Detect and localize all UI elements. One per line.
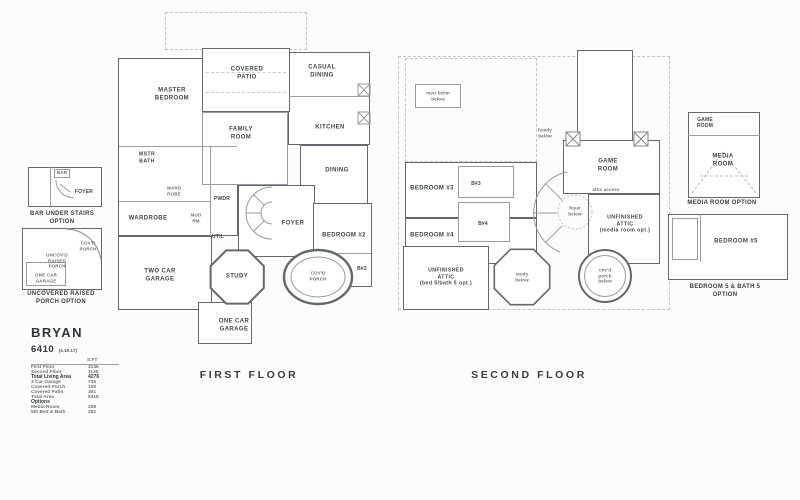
porch-option-covd-label: COV'D PORCH (79, 240, 96, 251)
room-label-two-car-garage: TWO CAR GARAGE (144, 269, 175, 284)
bed5-option-caption: BEDROOM 5 & BATH 5 OPTION (690, 284, 761, 300)
room-label-kitchen: KITCHEN (315, 124, 344, 132)
room-label-family-room: FAMILY ROOM (229, 127, 253, 142)
room-label-wardrobe: WARDROBE (129, 215, 168, 223)
porch-option-one-car-label: ONE CAR GARAGE (35, 272, 57, 283)
room-label-unfinished-attic-media: UNFINISHED ATTIC (media room opt.) (600, 214, 651, 234)
plan-name: BRYAN (31, 326, 119, 339)
room-label-foyer: FOYER (282, 220, 305, 228)
sf-stair-arc (534, 172, 567, 252)
room-label-family-below: family below (538, 127, 552, 138)
first-floor-title: FIRST FLOOR (200, 369, 299, 381)
bed5-option-bedroom-label: BEDROOM #5 (714, 238, 758, 246)
table-row: 5th Bed & Bath282 (31, 410, 119, 415)
room-label-bath-3: B#3 (471, 181, 481, 187)
porch-option-caption: UNCOVERED RAISED PORCH OPTION (27, 291, 94, 307)
room-label-covd-porch: COV'D PORCH (309, 270, 326, 281)
room-label-study: STUDY (226, 273, 248, 281)
bar-option-foyer-label: FOYER (75, 189, 93, 195)
room-label-bedroom-2: BEDROOM #2 (322, 232, 366, 240)
room-label-unfinished-attic-bed5: UNFINISHED ATTIC (bed 5/bath 5 opt.) (420, 267, 472, 287)
room-label-bedroom-3: BEDROOM #3 (410, 185, 454, 193)
room-label-bedroom-4: BEDROOM #4 (410, 232, 454, 240)
room-label-foyer-below: foyer below (568, 205, 582, 216)
ff-stair-inner (261, 202, 272, 224)
second-floor-title: SECOND FLOOR (471, 369, 587, 381)
room-label-mstr-bath: MSTR BATH (139, 152, 155, 165)
room-label-pwdr: PWDR (214, 196, 230, 202)
bar-stair-arc (56, 180, 74, 198)
room-label-study-below: study below (515, 271, 529, 282)
room-label-covd-porch-below: cov'd porch below (598, 267, 612, 284)
room-label-master-bedroom: MASTER BEDROOM (155, 88, 189, 103)
porch-option-uncovd-label: UNCOV'D RAISED PORCH (46, 252, 68, 269)
room-label-util: UTIL (212, 234, 224, 240)
bar-option-bar-label: BAR (57, 170, 67, 176)
room-label-ward-robe-closet: WARD ROBE (167, 185, 181, 196)
room-label-bath-2: B#2 (357, 266, 367, 272)
room-label-mud-rm: MUD RM (191, 212, 202, 223)
sf-column-x-icons (566, 132, 648, 146)
plan-number: 6410 (31, 344, 54, 355)
room-label-game-room: GAME ROOM (598, 159, 618, 174)
media-option-game-room-label: GAME ROOM (697, 117, 713, 130)
media-option-caption: MEDIA ROOM OPTION (687, 200, 756, 208)
cabinet-x-icons (358, 84, 370, 124)
floorplan-sheet: MASTER BEDROOM COVERED PATIO CASUAL DINI… (0, 0, 800, 500)
floorplan-shapes (0, 0, 800, 500)
bar-option-caption: BAR UNDER STAIRS OPTION (30, 211, 94, 227)
unit-header: S.FT (31, 358, 119, 365)
plan-revision: (4.19.17) (59, 348, 77, 353)
room-label-dining: DINING (325, 167, 348, 175)
room-label-bath-4: B#4 (478, 221, 488, 227)
area-spec-table: BRYAN 6410 (4.19.17) S.FT First Floor314… (31, 326, 119, 415)
room-label-one-car-garage: ONE CAR GARAGE (219, 319, 249, 334)
room-label-mstr-bdrm-below: mstr bdrm below (426, 90, 450, 101)
media-option-media-room-label: MEDIA ROOM (712, 154, 733, 169)
room-label-covered-patio: COVERED PATIO (231, 67, 263, 82)
room-label-attic-access: attic access (592, 187, 619, 193)
room-label-casual-dining: CASUAL DINING (308, 65, 335, 80)
